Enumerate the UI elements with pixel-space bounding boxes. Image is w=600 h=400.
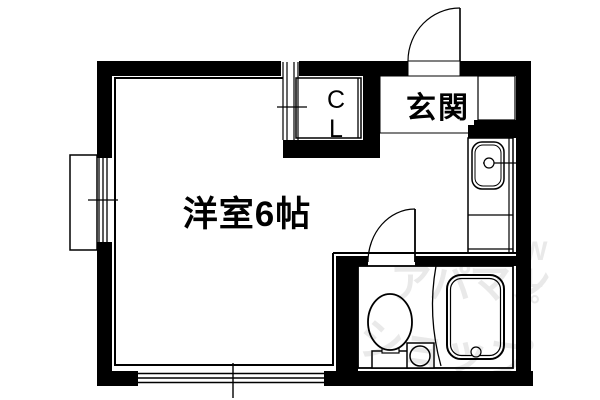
toilet xyxy=(368,294,412,368)
drain-icon xyxy=(471,347,481,357)
closet-label: C L xyxy=(318,86,354,144)
floorplan: アパマン ショップ W L ° 洋室6帖 玄関 C L xyxy=(0,0,600,400)
room-label: 洋室6帖 xyxy=(158,190,336,232)
bathroom-door-swing-icon xyxy=(368,209,415,262)
shoe-cabinet xyxy=(478,76,515,120)
entrance-label: 玄関 xyxy=(402,85,474,125)
entrance-threshold xyxy=(408,61,460,76)
vanity-sink xyxy=(468,138,516,253)
entrance-door-swing-icon xyxy=(408,8,460,61)
wash-basin xyxy=(407,343,434,368)
bathroom xyxy=(358,266,513,368)
bathtub xyxy=(447,275,504,359)
bottom-window xyxy=(138,363,324,398)
left-window xyxy=(70,155,118,250)
faucet-icon xyxy=(483,158,516,168)
